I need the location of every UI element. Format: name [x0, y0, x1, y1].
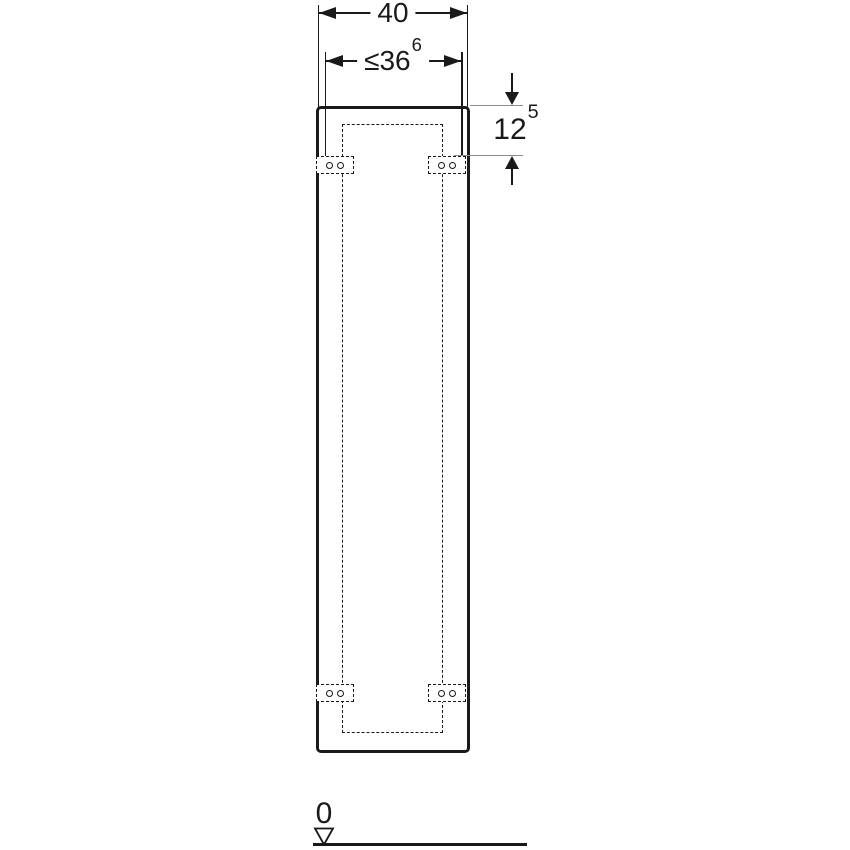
fixing-bracket-top-right [428, 156, 466, 174]
overall-width-label: 40 [370, 0, 415, 27]
arrow-stem-up [511, 169, 513, 185]
screw-hole-icon [326, 162, 333, 169]
screw-hole-icon [438, 690, 445, 697]
screw-hole-icon [337, 162, 344, 169]
floor-datum-line [313, 843, 527, 846]
extension-line-overall-left [318, 5, 320, 107]
screw-hole-icon [438, 162, 445, 169]
arrowhead-left-icon [319, 7, 336, 19]
extension-line-overall-right [467, 5, 469, 107]
screw-hole-icon [337, 690, 344, 697]
arrowhead-right-icon [450, 7, 467, 19]
mount-width-value: ≤36 [364, 45, 411, 76]
top-offset-value: 12 [493, 113, 526, 146]
screw-hole-icon [449, 162, 456, 169]
cabinet-hidden-rear-panel-outline [342, 124, 443, 733]
fixing-bracket-top-left [316, 156, 354, 174]
mount-width-superscript: 6 [412, 34, 422, 55]
arrowhead-left-icon [326, 55, 343, 67]
screw-hole-icon [326, 690, 333, 697]
technical-drawing-canvas: 40 ≤366 125 0 [0, 0, 850, 850]
screw-hole-icon [449, 690, 456, 697]
top-offset-superscript: 5 [528, 101, 539, 123]
arrowhead-up-icon [505, 156, 519, 169]
datum-zero-label: 0 [316, 799, 333, 829]
arrowhead-down-icon [505, 92, 519, 105]
mount-width-label: ≤366 [357, 45, 429, 75]
overall-width-value: 40 [377, 0, 408, 28]
fixing-bracket-bottom-right [428, 684, 466, 702]
arrow-stem-down [511, 73, 513, 93]
fixing-bracket-bottom-left [316, 684, 354, 702]
arrowhead-right-icon [444, 55, 461, 67]
top-offset-label: 125 [493, 113, 538, 145]
